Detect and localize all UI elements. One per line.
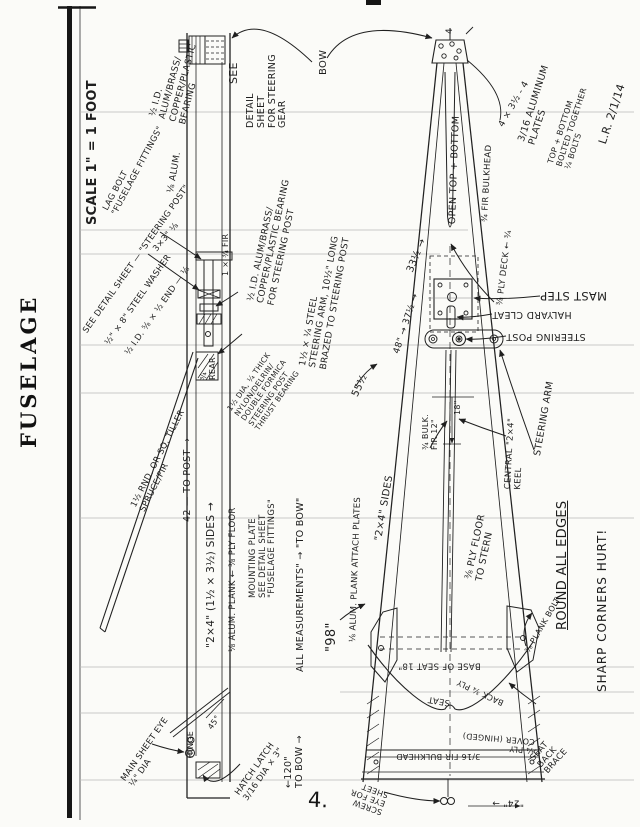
- annotation-dim-18: 18": [453, 400, 462, 415]
- annotation-steering-post: STEERING POST: [506, 330, 586, 341]
- annotation-mast-step: MAST STEP: [540, 289, 607, 302]
- annotation-sides-2x4: "2×4" (1½ × 3½) SIDES →: [206, 502, 218, 648]
- scanned-plan-page: FUSELAGE 4. SCALE 1" = 1 FOOT LAG BOLT "…: [0, 0, 640, 827]
- annotation-hinge: HINGE: [186, 731, 195, 758]
- annotation-fir-134: 1 × ¾ FIR: [221, 234, 230, 276]
- annotation-detail-steering-gear: DETAIL SHEET FOR STEERING GEAR: [246, 54, 289, 128]
- page-title: FUSELAGE: [16, 295, 41, 448]
- leader-arrows: [148, 29, 540, 801]
- annotation-to-post-42: 42 — TO POST →: [183, 438, 194, 522]
- annotation-scale: SCALE 1" = 1 FOOT: [86, 80, 101, 225]
- annotation-fir-bulkhead-316: 3/16 FIR BULKHEAD: [396, 752, 480, 761]
- annotation-round-all-edges: ROUND ALL EDGES: [556, 501, 571, 630]
- page-number: 4.: [308, 788, 329, 813]
- annotation-mounting-plate: MOUNTING PLATE SEE DETAIL SHEET "FUSELAG…: [249, 499, 278, 598]
- annotation-rear-34: ¾ REAR: [199, 357, 217, 380]
- side-view: [100, 33, 232, 798]
- annotation-ply-floor-38: ⅛ ALUM. PLANK ← ⅜ PLY FLOOR: [229, 507, 239, 652]
- annotation-central-keel: CENTRAL "2×4" KEEL: [504, 418, 527, 490]
- annotation-base-of-seat: BASE OF SEAT 18": [398, 660, 481, 670]
- annotation-sharp-corners: SHARP CORNERS HURT!: [596, 529, 610, 692]
- annotation-dim-98: "98": [325, 622, 340, 652]
- page-edge-line: [67, 6, 72, 818]
- annotation-tip-4: 4: [445, 28, 455, 34]
- annotation-all-measurements: ALL MEASUREMENTS" → "TO BOW": [296, 497, 307, 672]
- annotation-see: SEE: [228, 62, 241, 84]
- annotation-to-bow-120: ←120" TO BOW →: [284, 735, 306, 788]
- annotation-dim-24: "24" →: [492, 797, 524, 807]
- annotation-bulk-fir: ¾ BULK. FIR 12": [421, 414, 439, 450]
- annotation-bow: BOW: [318, 50, 329, 75]
- annotation-halyard-cleat: HALYARD CLEAT: [492, 308, 572, 319]
